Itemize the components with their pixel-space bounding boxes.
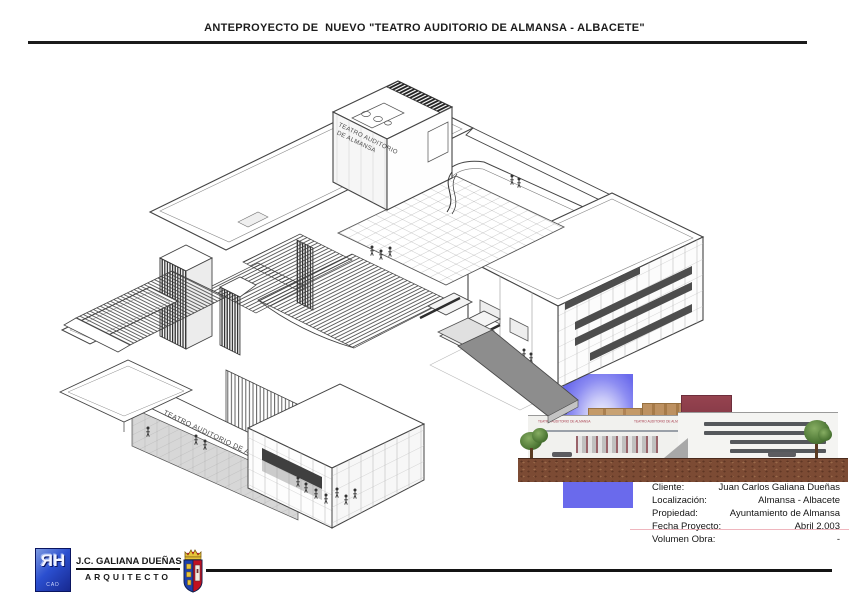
info-label: Propiedad: <box>652 507 698 520</box>
elevation-left-building: TEATRO AUDITORIO DE ALMANSA TEATRO AUDIT… <box>528 415 680 459</box>
louver-tower <box>160 245 256 355</box>
facade-label: TEATRO AUDITORIO DE ALMANSA <box>162 409 278 469</box>
architect-name: J.C. GALIANA DUEÑAS <box>76 556 180 570</box>
louver-strip <box>575 266 692 330</box>
stage-floor <box>338 176 564 285</box>
crease-line <box>630 529 849 530</box>
info-label: Volumen Obra: <box>652 533 715 546</box>
rooftop-plant <box>352 103 404 128</box>
entrance-facade: TEATRO AUDITORIO DE ALMANSA <box>60 360 322 520</box>
title-rule <box>28 41 807 44</box>
info-label: Cliente: <box>652 481 684 494</box>
fly-tower: TEATRO AUDITORIO DE ALMANSA <box>333 81 457 214</box>
curtain-wall <box>132 408 298 520</box>
fan-stair <box>62 271 226 352</box>
elevation-colonnade <box>576 436 658 453</box>
ground-strip <box>518 458 848 482</box>
main-roof <box>150 91 473 250</box>
svg-text:DE ALMANSA: DE ALMANSA <box>335 130 377 155</box>
canopy <box>60 360 192 422</box>
info-value: Abril 2.003 <box>795 520 840 533</box>
architect-block: J.C. GALIANA DUEÑAS ARQUITECTO <box>76 556 180 582</box>
entrance-volume <box>248 384 424 528</box>
footer-rule <box>206 569 832 572</box>
right-wing <box>468 193 703 388</box>
seating-fan <box>208 234 448 348</box>
info-value: Ayuntamiento de Almansa <box>730 507 840 520</box>
info-label: Fecha Proyecto: <box>652 520 721 533</box>
louver-strip <box>590 304 692 361</box>
project-info: Cliente: Juan Carlos Galiana Dueñas Loca… <box>652 481 840 546</box>
car-specks <box>768 452 796 457</box>
tree-trunk <box>530 448 533 458</box>
svg-text:TEATRO AUDITORIO DE ALMANSA: TEATRO AUDITORIO DE ALMANSA <box>162 409 278 469</box>
rhcad-logo-text: ЯH <box>36 551 70 571</box>
info-value: Juan Carlos Galiana Dueñas <box>719 481 840 494</box>
info-value: Almansa - Albacete <box>758 494 840 507</box>
svg-text:TEATRO AUDITORIO: TEATRO AUDITORIO <box>337 121 399 156</box>
tree-right <box>818 428 832 441</box>
roof-louver-strip <box>387 81 452 113</box>
car-specks <box>552 452 572 457</box>
project-info-row: Cliente: Juan Carlos Galiana Dueñas <box>652 481 840 494</box>
tree-left <box>532 428 548 443</box>
rhcad-logo: ЯH CAD <box>35 548 71 592</box>
roof-parapet-band <box>466 128 652 222</box>
project-info-row: Localización: Almansa - Albacete <box>652 494 840 507</box>
entry-opening <box>262 448 322 489</box>
architect-title: ARQUITECTO <box>76 572 180 582</box>
curved-stair <box>447 172 452 212</box>
tree-trunk <box>815 444 818 458</box>
project-info-row: Volumen Obra: - <box>652 533 840 546</box>
info-label: Localización: <box>652 494 707 507</box>
almansa-coat-of-arms <box>178 545 208 595</box>
tower-label: TEATRO AUDITORIO DE ALMANSA <box>334 121 399 163</box>
rhcad-logo-sub: CAD <box>36 582 70 588</box>
proscenium-wall <box>297 240 313 310</box>
elevation-roofline <box>536 430 686 432</box>
louver-wall <box>226 370 318 468</box>
page-title: ANTEPROYECTO DE NUEVO "TEATRO AUDITORIO … <box>0 22 849 34</box>
louver-strip <box>575 282 692 346</box>
project-info-row: Propiedad: Ayuntamiento de Almansa <box>652 507 840 520</box>
louver-strip <box>565 267 640 310</box>
elevation-label: TEATRO AUDITORIO DE ALMANSA <box>538 420 591 423</box>
project-info-row: Fecha Proyecto: Abril 2.003 <box>652 520 840 533</box>
balcony-seating <box>436 161 623 272</box>
facade-band <box>128 386 322 480</box>
human-figures <box>296 477 357 505</box>
info-value: - <box>837 533 840 546</box>
